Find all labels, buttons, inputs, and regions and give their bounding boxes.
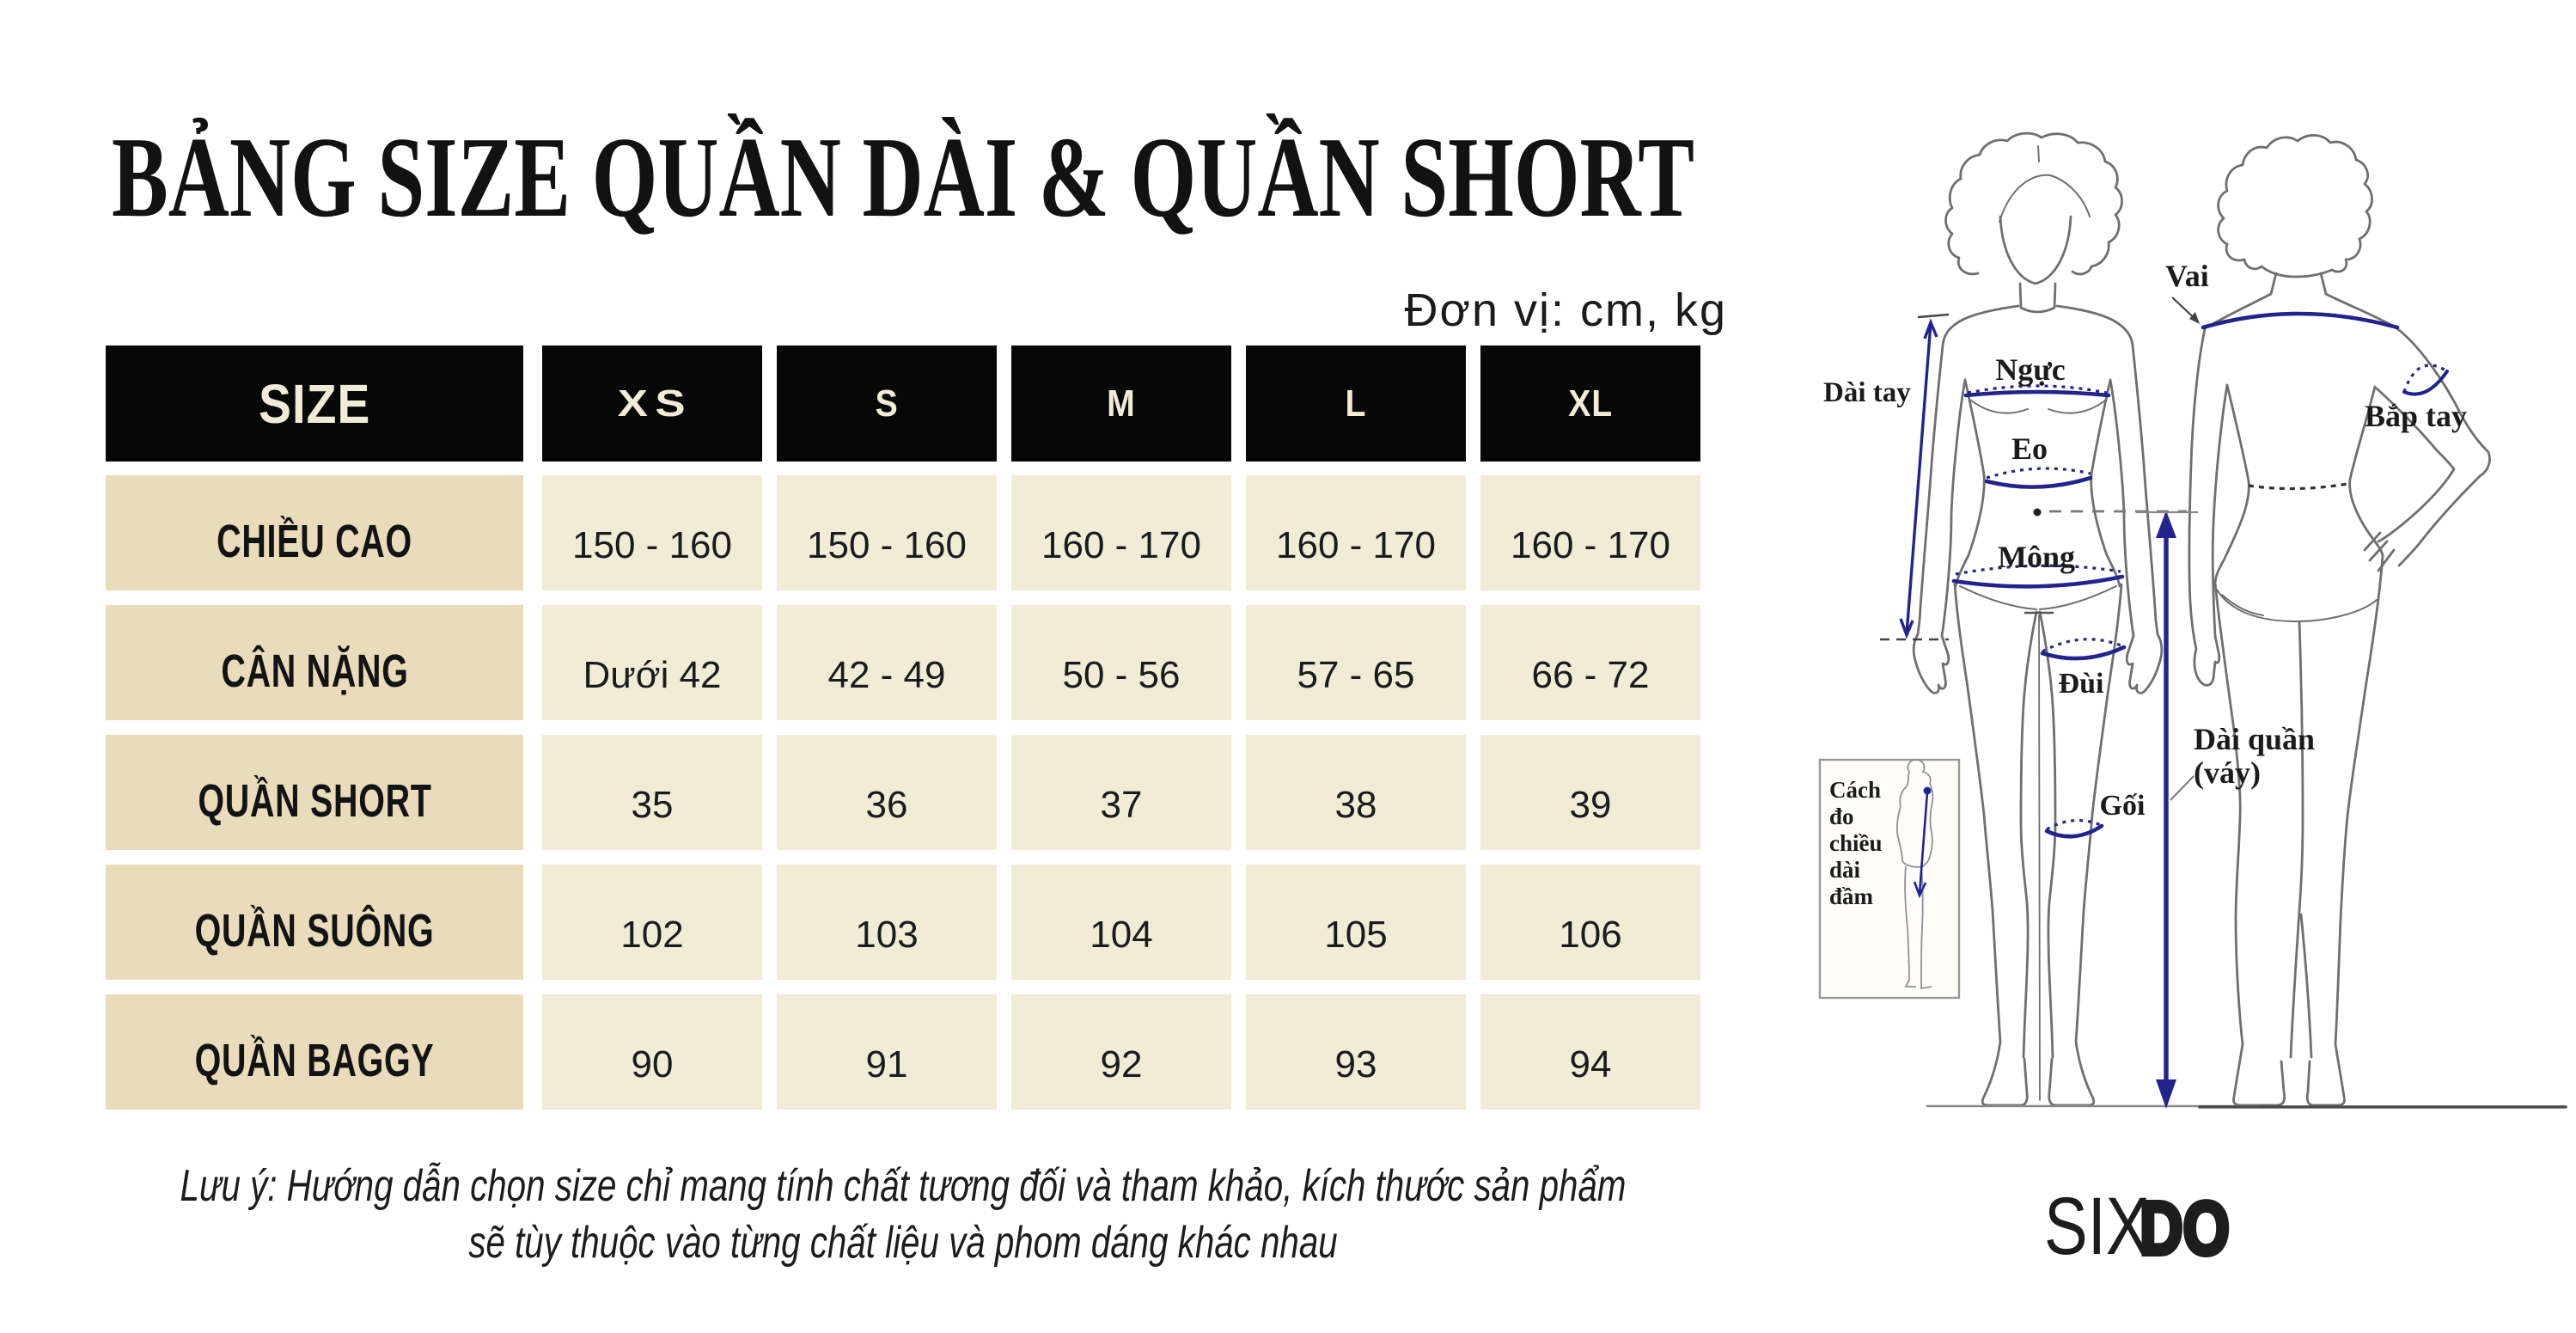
svg-text:đo: đo xyxy=(1829,804,1854,829)
svg-text:chiều: chiều xyxy=(1829,830,1883,856)
svg-text:Eo: Eo xyxy=(2011,431,2048,466)
svg-text:Gối: Gối xyxy=(2100,790,2146,822)
svg-text:đầm: đầm xyxy=(1829,884,1874,909)
svg-text:Vai: Vai xyxy=(2165,259,2209,293)
svg-text:Dài tay: Dài tay xyxy=(1823,377,1911,408)
svg-text:dài: dài xyxy=(1829,857,1861,883)
svg-text:Ngực: Ngực xyxy=(1995,352,2066,387)
svg-text:Dài quần: Dài quần xyxy=(2194,722,2315,756)
svg-text:Mông: Mông xyxy=(1998,540,2075,574)
svg-text:Cách: Cách xyxy=(1829,777,1881,803)
svg-text:Đùi: Đùi xyxy=(2059,668,2104,700)
svg-text:(váy): (váy) xyxy=(2194,755,2261,790)
svg-text:Bắp tay: Bắp tay xyxy=(2365,399,2467,433)
